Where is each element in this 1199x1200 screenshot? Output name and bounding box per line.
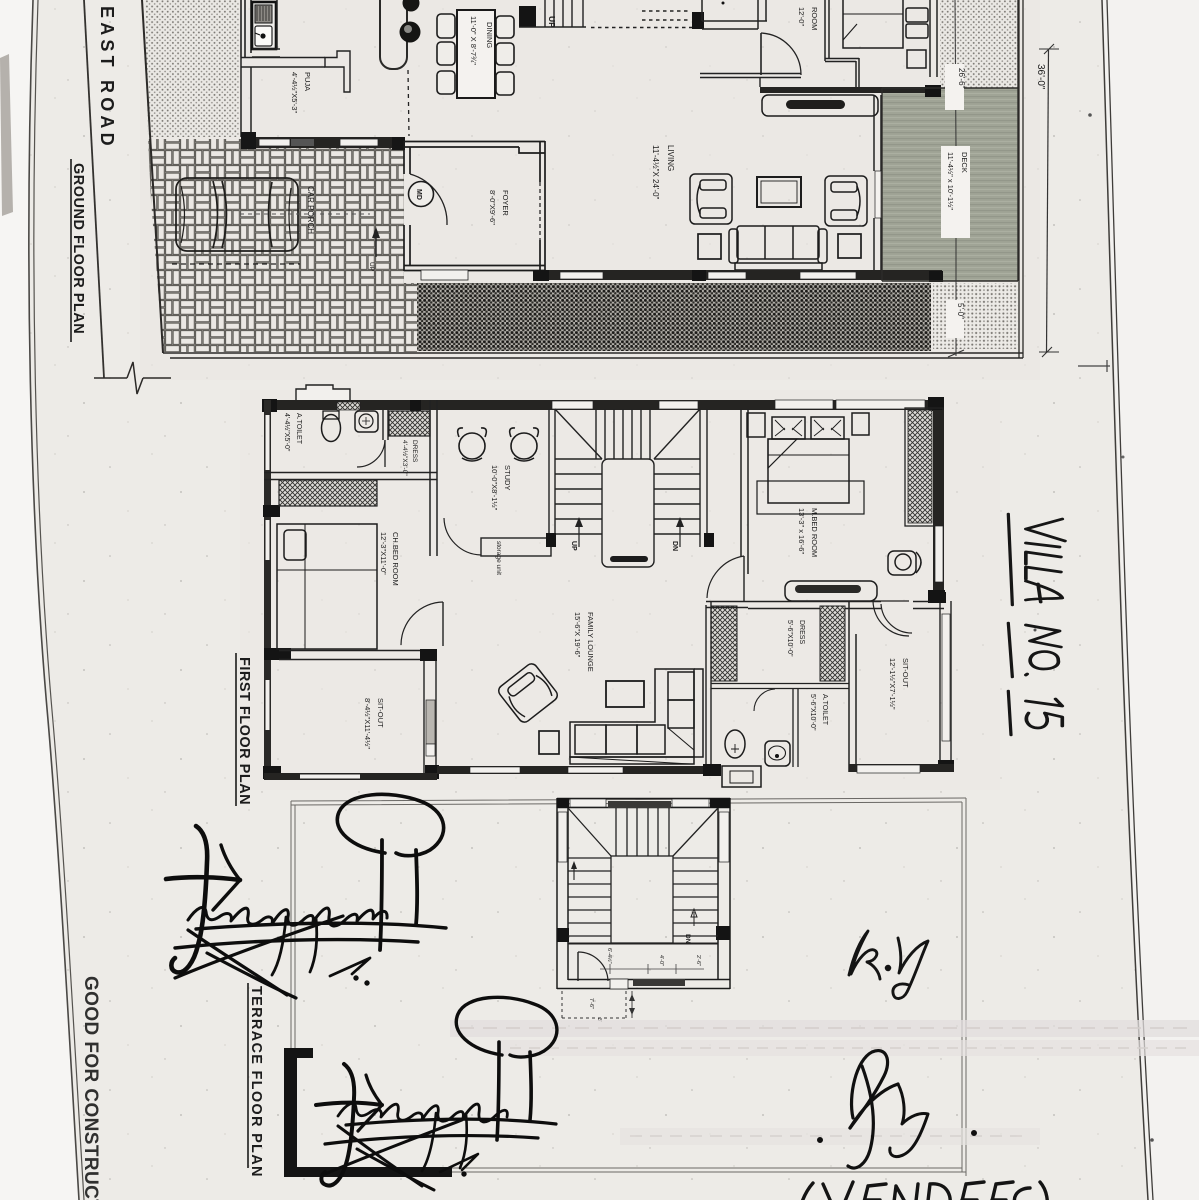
svg-text:EAST ROAD: EAST ROAD	[97, 6, 117, 150]
svg-text:13'-3" x 16'-6": 13'-3" x 16'-6"	[797, 508, 806, 554]
svg-text:5'-6"X10'-0": 5'-6"X10'-0"	[809, 694, 816, 731]
svg-text:SIT-OUT: SIT-OUT	[376, 698, 385, 728]
svg-text:GROUND FLOOR PLAN: GROUND FLOOR PLAN	[70, 163, 86, 334]
svg-text:ROOM: ROOM	[810, 7, 819, 30]
svg-text:4'-4½"X5'-3": 4'-4½"X5'-3"	[290, 72, 299, 113]
svg-text:DRESS: DRESS	[411, 440, 418, 463]
svg-text:6'-4½": 6'-4½"	[606, 948, 613, 964]
svg-text:A.TOILET: A.TOILET	[295, 413, 302, 445]
svg-text:TERRACE FLOOR PLAN: TERRACE FLOOR PLAN	[248, 986, 264, 1178]
svg-text:4'-4½"X5'-0": 4'-4½"X5'-0"	[283, 413, 291, 452]
svg-text:DINING: DINING	[485, 22, 494, 48]
svg-text:GOOD FOR CONSTRUCTION: GOOD FOR CONSTRUCTION	[80, 976, 101, 1200]
svg-text:FOYER: FOYER	[501, 190, 510, 216]
svg-text:11'-4½" x 10'-1½": 11'-4½" x 10'-1½"	[946, 152, 955, 210]
svg-text:UP: UP	[570, 541, 577, 551]
svg-text:M.BED ROOM: M.BED ROOM	[810, 508, 819, 557]
svg-text:12'-0": 12'-0"	[797, 7, 806, 26]
svg-text:36'-0": 36'-0"	[1035, 64, 1046, 90]
svg-text:12'-3"X11'-0": 12'-3"X11'-0"	[379, 532, 388, 575]
svg-text:8'-0"X9'-6": 8'-0"X9'-6"	[488, 190, 497, 225]
svg-text:DECK: DECK	[960, 152, 969, 173]
svg-text:CAR PORCH: CAR PORCH	[306, 186, 315, 234]
svg-text:A.TOILET: A.TOILET	[821, 694, 828, 726]
svg-text:UP: UP	[547, 16, 557, 28]
svg-text:4'-4½"X3'-0": 4'-4½"X3'-0"	[401, 440, 409, 476]
svg-text:10'-0"X8'-1½": 10'-0"X8'-1½"	[490, 465, 499, 511]
svg-text:5'-6"X10'-0": 5'-6"X10'-0"	[786, 620, 793, 657]
svg-text:11'-4½"X 24'-0": 11'-4½"X 24'-0"	[651, 145, 660, 200]
svg-text:26'-6": 26'-6"	[957, 68, 966, 89]
svg-text:2'-6": 2'-6"	[695, 955, 701, 966]
svg-text:FIRST FLOOR PLAN: FIRST FLOOR PLAN	[236, 657, 252, 805]
svg-text:STUDY: STUDY	[503, 465, 512, 490]
svg-text:MD: MD	[415, 189, 422, 200]
svg-text:8'-4½"X11'-4½": 8'-4½"X11'-4½"	[363, 698, 372, 749]
svg-text:4'-0": 4'-0"	[658, 955, 664, 966]
svg-text:SIT-OUT: SIT-OUT	[901, 658, 910, 688]
svg-text:7'-6": 7'-6"	[588, 998, 594, 1009]
svg-text:11'-0" X 8'-7¾": 11'-0" X 8'-7¾"	[469, 16, 478, 65]
svg-text:CH.BED ROOM: CH.BED ROOM	[391, 532, 400, 586]
svg-text:storage unit: storage unit	[495, 541, 502, 575]
svg-text:FAMILY LOUNGE: FAMILY LOUNGE	[586, 612, 595, 672]
svg-text:PUJA: PUJA	[303, 72, 312, 91]
svg-text:15'-6"X 19'-6": 15'-6"X 19'-6"	[573, 612, 582, 658]
svg-text:5'-0": 5'-0"	[956, 303, 965, 319]
svg-text:LIVING: LIVING	[666, 145, 675, 171]
svg-text:DN: DN	[684, 934, 691, 944]
svg-text:DN: DN	[671, 541, 678, 551]
svg-text:DRESS: DRESS	[798, 620, 805, 644]
svg-text:UP: UP	[368, 262, 375, 271]
svg-text:12'-1½"X7'-1½": 12'-1½"X7'-1½"	[888, 658, 897, 710]
